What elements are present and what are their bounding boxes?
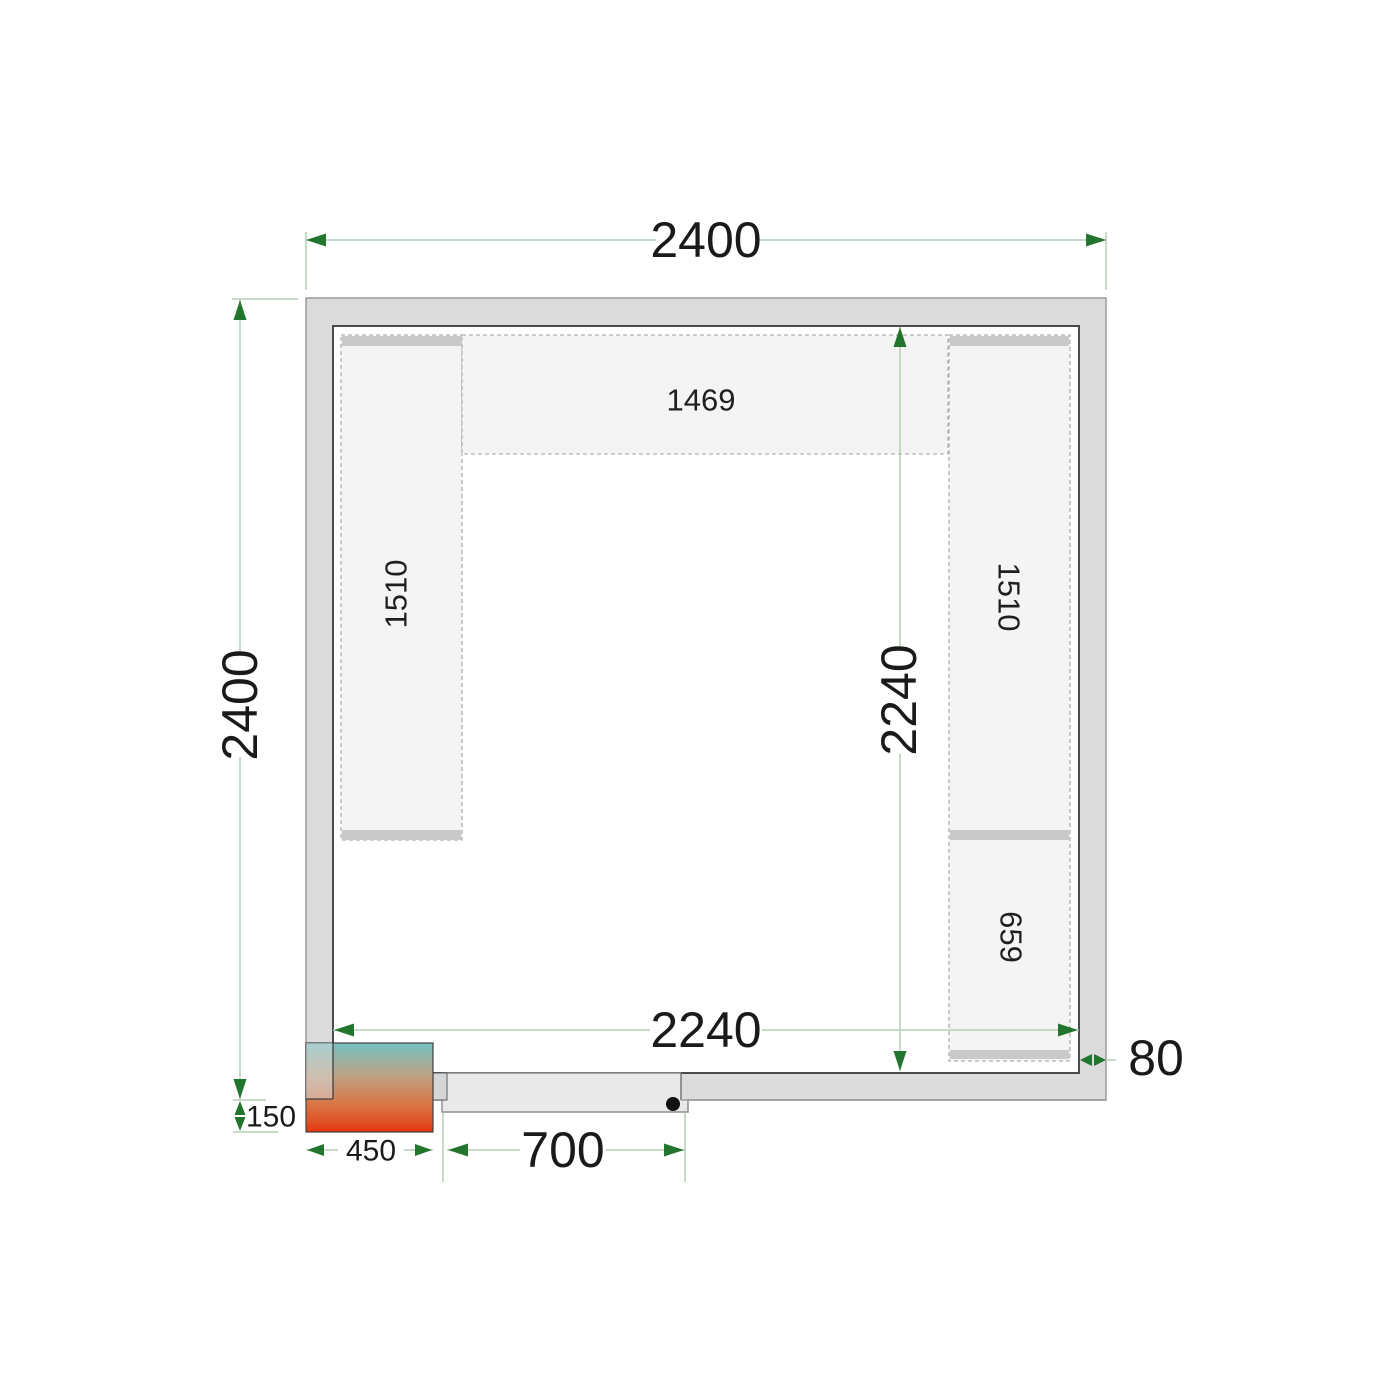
shelf-right-bottom-bar [950, 1050, 1069, 1059]
arrow-left-icon [307, 1144, 324, 1156]
dim-door-width-label: 700 [521, 1122, 604, 1178]
arrow-down-icon [234, 1079, 247, 1099]
dim-wall-thickness-label: 80 [1128, 1030, 1184, 1086]
dim-outer-width-label: 2400 [650, 212, 761, 268]
dim-inner-width-label: 2240 [650, 1002, 761, 1058]
door-hinge-dot [666, 1097, 680, 1111]
shelf-right-mid-bar [950, 830, 1069, 840]
arrow-up-icon [235, 1101, 246, 1115]
dim-outer-depth: 2400 [212, 299, 298, 1100]
cooling-unit [306, 1043, 433, 1132]
wall-overlap-tint [306, 1043, 333, 1099]
arrow-up-icon [234, 300, 247, 320]
shelf-left-bottom-bar [342, 830, 461, 840]
shelf-top-length-label: 1469 [667, 383, 736, 418]
arrow-down-icon [235, 1117, 246, 1131]
floor-plan-canvas: 1469 1510 1510 659 2400 2400 [0, 0, 1400, 1400]
shelf-left-top-bar [342, 336, 461, 346]
door-leaf [442, 1073, 688, 1112]
shelf-left-length-label: 1510 [379, 560, 414, 629]
dim-unit-protrusion-label: 150 [246, 1101, 296, 1134]
shelf-right-top-bar [950, 336, 1069, 346]
dim-unit-width-label: 450 [346, 1135, 396, 1168]
door [433, 1073, 1106, 1112]
shelf-right-lower-length-label: 659 [994, 911, 1029, 963]
arrow-left-icon [306, 234, 326, 247]
dim-outer-width: 2400 [306, 212, 1106, 290]
dim-inner-depth-label: 2240 [871, 644, 927, 755]
dim-outer-depth-label: 2400 [212, 649, 268, 760]
dim-unit-protrusion: 150 [233, 1101, 296, 1134]
arrow-right-icon [1086, 234, 1106, 247]
wall-over-door [681, 1074, 1105, 1099]
arrow-right-icon [664, 1144, 684, 1157]
shelf-right-upper-length-label: 1510 [992, 563, 1027, 632]
door-frame-step [433, 1073, 447, 1100]
arrow-right-icon [415, 1144, 432, 1156]
dim-door-width: 700 [443, 1113, 685, 1182]
dim-unit-width: 450 [306, 1135, 433, 1168]
arrow-left-icon [448, 1144, 468, 1157]
